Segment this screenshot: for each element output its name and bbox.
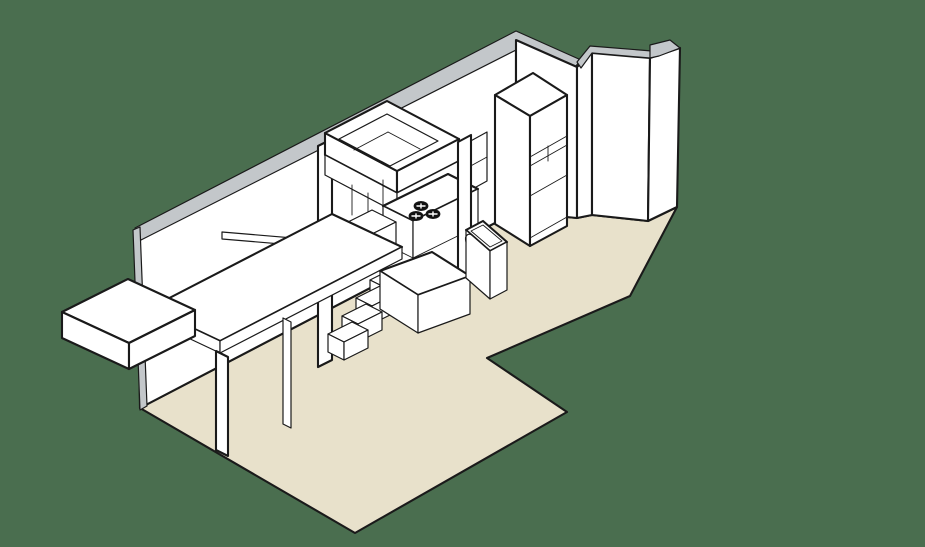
tall-cabinet-fridge [495,73,567,246]
isometric-kitchen-drawing [0,0,925,547]
bay-panel-1 [577,53,592,218]
bay-panel-2 [592,53,650,221]
fridge-left-face [495,95,530,246]
bay-panel-3 [648,48,680,221]
counter-mid-leg [283,318,291,428]
illustration-canvas [0,0,925,547]
sink-right-face [490,242,507,299]
fridge-right-face [530,95,567,246]
counter-left-leg [216,351,228,456]
